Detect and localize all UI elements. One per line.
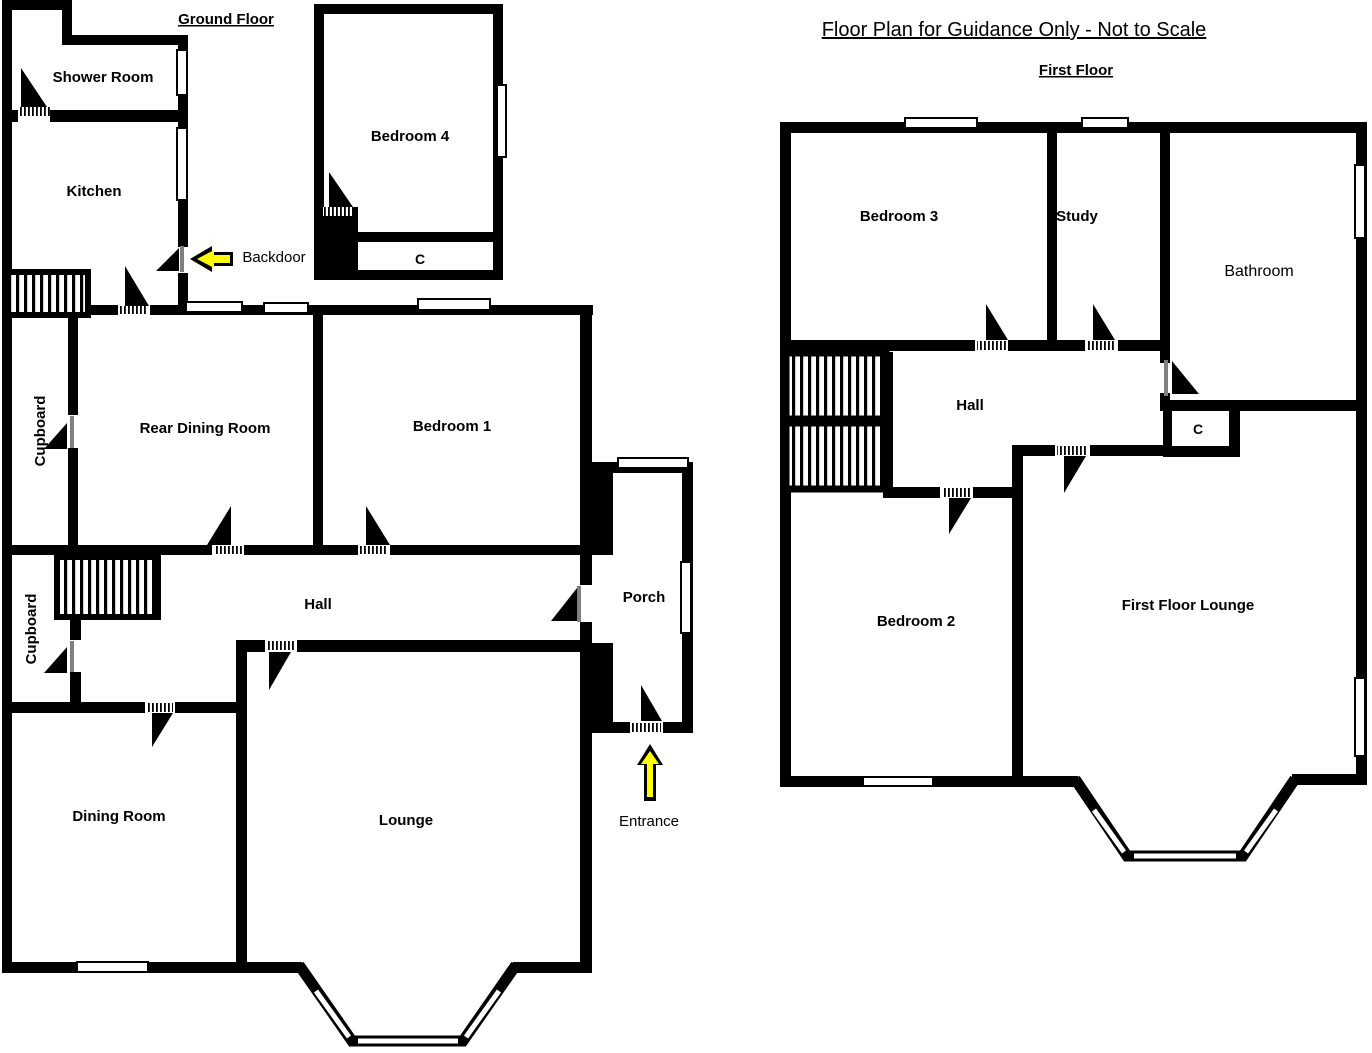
window-kitchen xyxy=(177,128,187,200)
label-hall-ground: Hall xyxy=(304,596,332,613)
page-title: Floor Plan for Guidance Only - Not to Sc… xyxy=(822,19,1207,41)
label-bathroom: Bathroom xyxy=(1224,263,1293,280)
floor-plan-page: Ground Floor Shower Room Kitchen Bedroom… xyxy=(0,0,1372,1053)
label-dining-room: Dining Room xyxy=(72,808,165,825)
stairs-hall xyxy=(57,557,158,617)
window-ff-lounge xyxy=(1355,678,1365,756)
window-bedroom1 xyxy=(418,299,490,310)
stairs-first-floor-lower xyxy=(786,423,886,489)
ground-floor-heading: Ground Floor xyxy=(178,11,274,28)
label-ff-cupboard: C xyxy=(1193,421,1203,437)
label-rear-dining-room: Rear Dining Room xyxy=(140,420,271,437)
label-porch: Porch xyxy=(623,589,666,606)
stairs-first-floor-upper xyxy=(786,353,886,419)
floor-plan-canvas: Ground Floor Shower Room Kitchen Bedroom… xyxy=(0,0,1372,1053)
label-ff-lounge: First Floor Lounge xyxy=(1122,597,1255,614)
label-cupboard-upper: Cupboard xyxy=(32,396,49,467)
window-bedroom4 xyxy=(497,85,506,157)
label-hall-first: Hall xyxy=(956,397,984,414)
label-bedroom4: Bedroom 4 xyxy=(371,128,450,145)
first-floor-heading: First Floor xyxy=(1039,62,1113,79)
label-bedroom1: Bedroom 1 xyxy=(413,418,491,435)
label-entrance: Entrance xyxy=(619,813,679,830)
label-bedroom2: Bedroom 2 xyxy=(877,613,955,630)
window-rear-2 xyxy=(264,303,308,313)
label-kitchen: Kitchen xyxy=(66,183,121,200)
window-bedroom2 xyxy=(863,777,933,786)
window-porch-right xyxy=(681,562,691,633)
label-bedroom3: Bedroom 3 xyxy=(860,208,938,225)
window-porch-top xyxy=(618,458,688,468)
window-study xyxy=(1082,118,1128,128)
label-backdoor: Backdoor xyxy=(242,249,305,266)
label-study: Study xyxy=(1056,208,1098,225)
window-bathroom xyxy=(1355,165,1365,238)
stairs-kitchen xyxy=(8,272,88,315)
label-shower-room: Shower Room xyxy=(53,69,154,86)
window-dining-room xyxy=(77,962,148,972)
label-cupboard-lower: Cupboard xyxy=(23,594,40,665)
window-rear-1 xyxy=(186,302,242,312)
window-bedroom3 xyxy=(905,118,977,128)
label-lounge: Lounge xyxy=(379,812,433,829)
window-shower-room xyxy=(177,50,187,95)
label-bedroom4-cupboard: C xyxy=(415,251,425,267)
